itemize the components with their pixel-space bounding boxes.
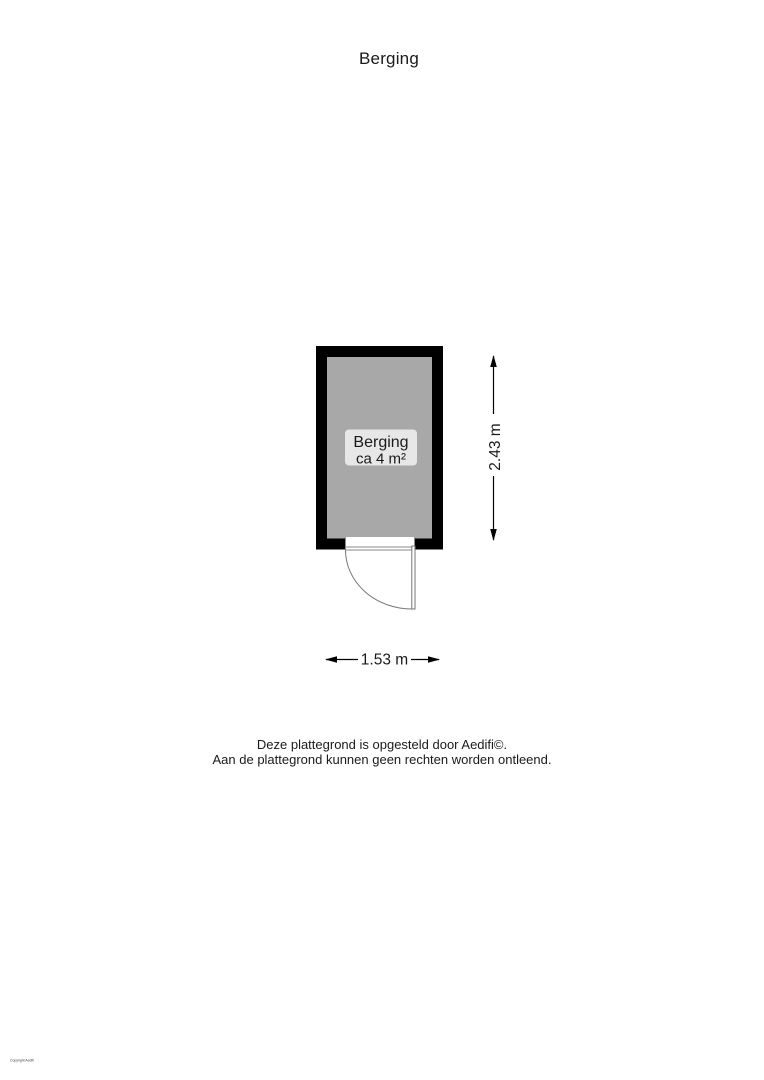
height-dimension: 2.43 m bbox=[487, 355, 504, 541]
room-name: Berging bbox=[353, 434, 408, 451]
footer-line-2: Aan de plattegrond kunnen geen rechten w… bbox=[0, 752, 764, 767]
floorplan-page: Berging Berging ca 4 m² bbox=[0, 0, 764, 1080]
width-dimension: 1.53 m bbox=[325, 652, 440, 669]
door-leaf bbox=[412, 546, 415, 609]
arrow-left-icon bbox=[325, 656, 337, 663]
door-opening bbox=[345, 537, 415, 553]
footer-line-1: Deze plattegrond is opgesteld door Aedif… bbox=[0, 737, 764, 752]
copyright-watermark: Copyright Aedifi bbox=[10, 1058, 34, 1062]
room-area: ca 4 m² bbox=[356, 451, 406, 468]
arrow-right-icon bbox=[428, 656, 440, 663]
room-label: Berging ca 4 m² bbox=[345, 430, 417, 468]
arrow-down-icon bbox=[490, 529, 497, 541]
height-dimension-label: 2.43 m bbox=[487, 423, 504, 470]
door-swing bbox=[346, 546, 416, 609]
door-arc bbox=[346, 550, 413, 609]
arrow-up-icon bbox=[490, 355, 497, 367]
door-opening-gap bbox=[345, 537, 415, 550]
width-dimension-label: 1.53 m bbox=[361, 652, 408, 669]
footer-disclaimer: Deze plattegrond is opgesteld door Aedif… bbox=[0, 737, 764, 767]
floorplan-drawing: Berging ca 4 m² 2.43 m 1.53 m bbox=[0, 0, 764, 1080]
